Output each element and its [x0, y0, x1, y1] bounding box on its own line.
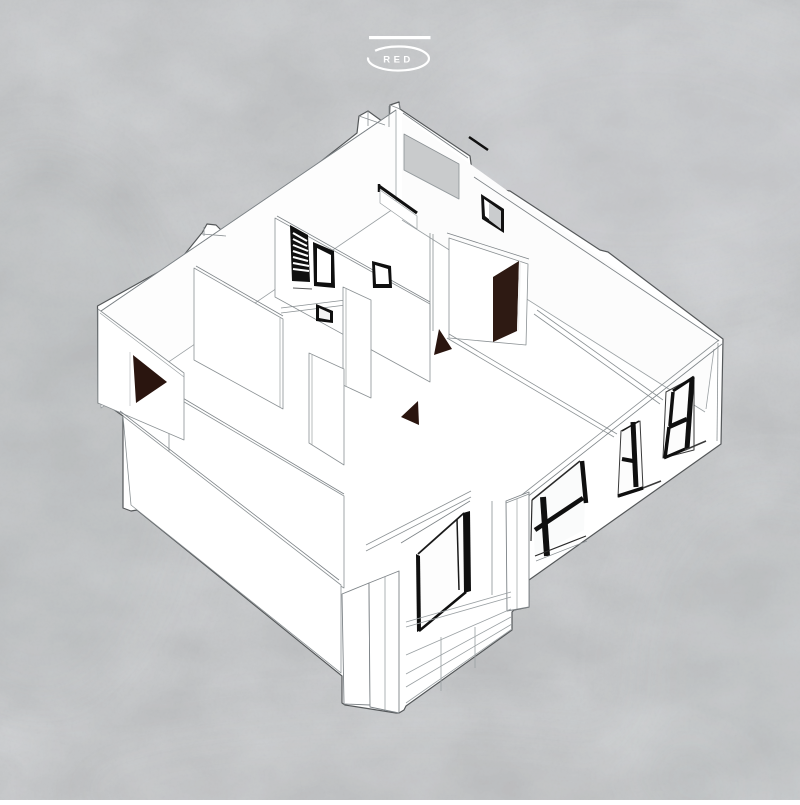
- svg-text:RED: RED: [383, 55, 414, 66]
